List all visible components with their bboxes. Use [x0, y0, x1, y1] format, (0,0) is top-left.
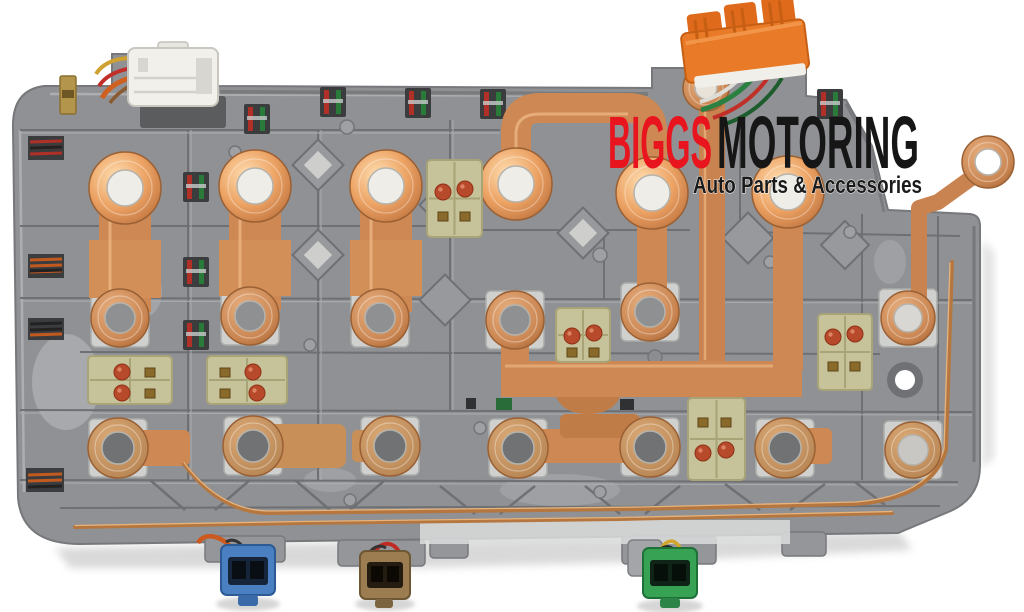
ring-terminal: [351, 289, 409, 347]
brown-connector: [360, 544, 410, 608]
ring-terminal: [91, 289, 149, 347]
wire-pair-slot: [183, 320, 209, 350]
through-hole: [887, 362, 923, 398]
ring-terminal: [221, 287, 279, 345]
wire-pair-slot: [183, 257, 209, 287]
diode-block: [427, 160, 482, 237]
ring-terminal: [219, 150, 291, 222]
ring-terminal: [962, 136, 1014, 188]
circuit-board-photo: BIGGS MOTORING Auto Parts & Accessories: [0, 0, 1024, 612]
ring-terminal: [486, 291, 544, 349]
ring-terminal: [621, 283, 679, 341]
ring-terminal: [488, 418, 548, 478]
ring-terminal: [881, 291, 935, 345]
diode-block: [207, 356, 287, 404]
ring-terminal: [223, 416, 283, 476]
ring-terminal: [755, 418, 815, 478]
brass-clip: [60, 76, 76, 114]
ring-terminal: [885, 422, 941, 478]
ring-terminal: [620, 417, 680, 477]
diode-block: [88, 356, 172, 404]
diode-block: [556, 308, 610, 362]
wire-pair-slot: [320, 87, 346, 117]
wire-pair-slot: [244, 104, 270, 134]
white-connector: [96, 42, 218, 106]
wire-pair-slot: [405, 88, 431, 118]
ring-terminal: [88, 418, 148, 478]
watermark-tagline: Auto Parts & Accessories: [693, 172, 922, 199]
bottom-glare: [420, 520, 790, 544]
product-photo: BIGGS MOTORING Auto Parts & Accessories: [0, 0, 1024, 612]
ring-terminal: [480, 148, 552, 220]
diode-block: [818, 314, 872, 390]
green-connector: [628, 540, 697, 608]
wire-pair-slot: [183, 172, 209, 202]
ring-terminal: [89, 152, 161, 224]
wire-pair-slot: [480, 89, 506, 119]
ring-terminal: [360, 416, 420, 476]
ring-terminal: [350, 150, 422, 222]
diode-block: [688, 398, 745, 480]
